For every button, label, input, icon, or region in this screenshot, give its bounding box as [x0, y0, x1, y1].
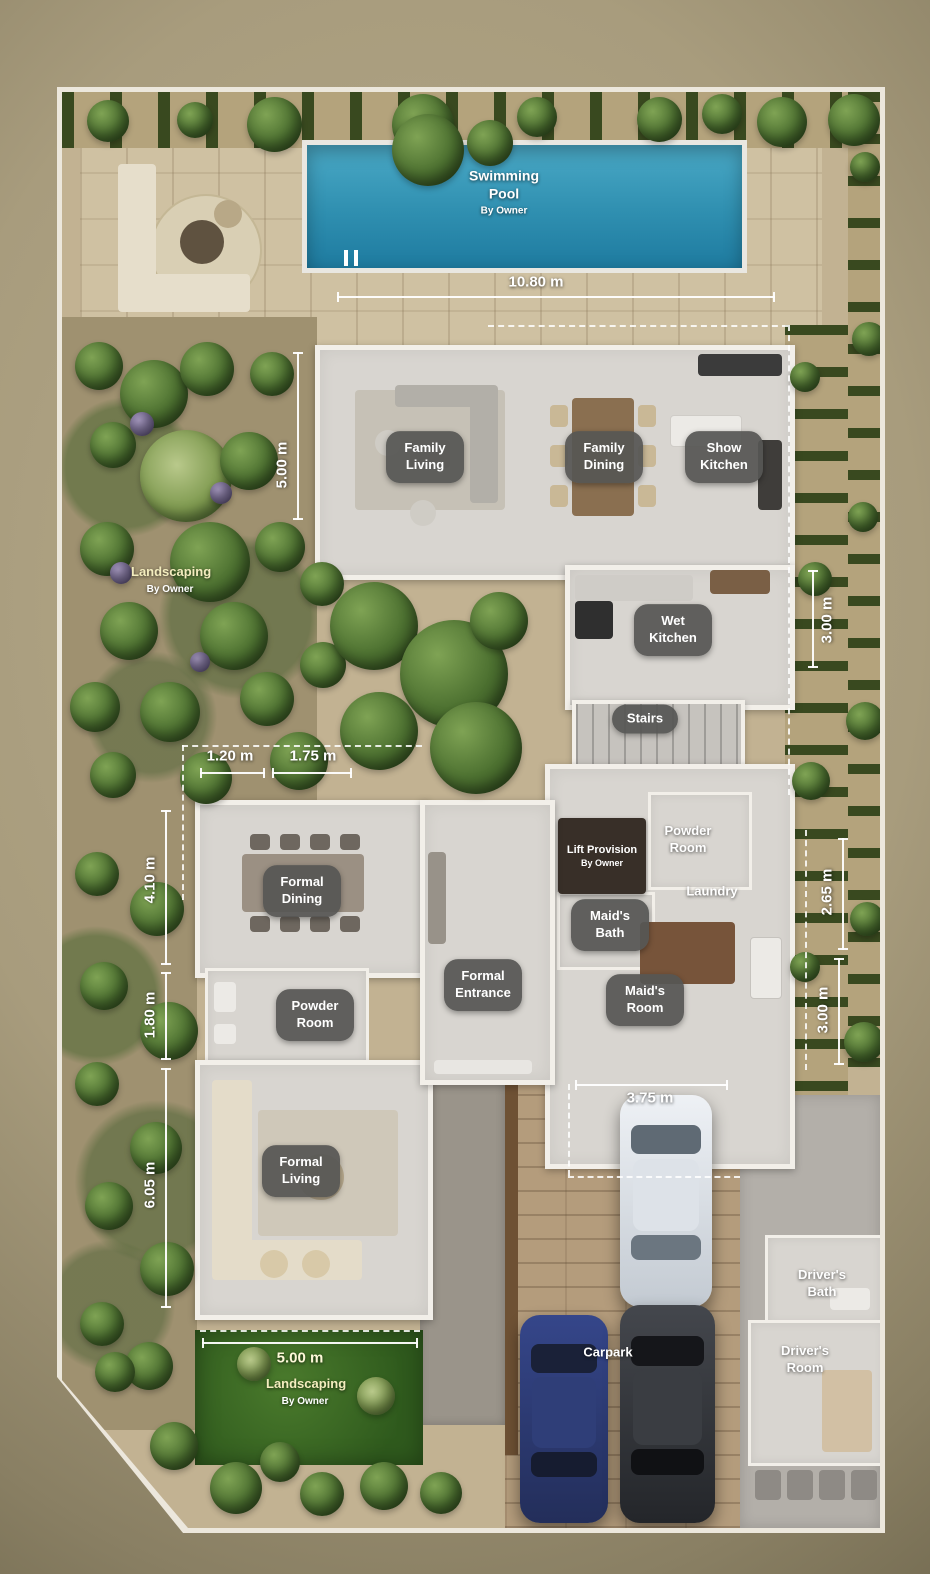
wet-kitchen-counter — [575, 575, 693, 601]
setback-line — [805, 830, 807, 1070]
dimension-line — [272, 772, 352, 774]
stairs-badge: Stairs — [612, 705, 678, 734]
dimension-line — [202, 1342, 418, 1344]
cooktop — [575, 601, 613, 639]
dim-formal-dining: 4.10 m — [142, 857, 159, 904]
tree — [250, 352, 294, 396]
chair — [550, 485, 568, 507]
lift-label: Lift Provision — [558, 844, 646, 856]
drivers-room-label: Driver's Room — [766, 1343, 844, 1377]
chair — [638, 405, 656, 427]
shrub — [846, 702, 884, 740]
landscaping-left-byowner: By Owner — [131, 583, 209, 596]
shrub — [850, 902, 884, 936]
chair — [280, 916, 300, 932]
pouf — [302, 1250, 330, 1278]
tree — [247, 97, 302, 152]
floor-plan-canvas: Swimming Pool By Owner Lift Provision — [0, 0, 930, 1574]
landscaping-left-label: Landscaping By Owner — [131, 564, 209, 596]
console — [428, 852, 446, 944]
palm-tree — [140, 430, 232, 522]
tree — [180, 342, 234, 396]
chair — [310, 834, 330, 850]
chair — [250, 834, 270, 850]
dim-family-depth: 5.00 m — [274, 442, 291, 489]
tree — [260, 1442, 300, 1482]
tree — [255, 522, 305, 572]
show-kitchen-badge: Show Kitchen — [685, 431, 763, 483]
tree — [87, 100, 129, 142]
tree — [75, 1062, 119, 1106]
dimension-line — [812, 570, 814, 668]
sofa — [470, 385, 498, 503]
outdoor-sofa — [118, 274, 250, 312]
shrub — [790, 362, 820, 392]
tree — [240, 672, 294, 726]
wet-kitchen-badge: Wet Kitchen — [634, 604, 712, 656]
tree — [80, 962, 128, 1010]
shrub — [798, 562, 832, 596]
cabinet — [710, 570, 770, 594]
plot-area: Swimming Pool By Owner Lift Provision — [62, 92, 880, 1528]
outdoor-side-table — [214, 200, 242, 228]
bed — [822, 1370, 872, 1452]
setback-line — [488, 325, 788, 327]
dimension-line — [165, 1068, 167, 1308]
dim-right-b: 3.00 m — [815, 987, 832, 1034]
courtyard-tree — [470, 592, 528, 650]
dim-formal-living: 6.05 m — [142, 1162, 159, 1209]
tree — [150, 1422, 198, 1470]
pool-ladder — [354, 250, 358, 266]
dim-court-b: 1.75 m — [290, 748, 337, 765]
formal-entrance-badge: Formal Entrance — [444, 959, 522, 1011]
tree — [200, 602, 268, 670]
maids-room-badge: Maid's Room — [606, 974, 684, 1026]
dimension-line — [165, 810, 167, 965]
pouf — [260, 1250, 288, 1278]
washer — [787, 1470, 813, 1500]
tree — [140, 682, 200, 742]
formal-living-badge: Formal Living — [262, 1145, 340, 1197]
dim-court-a: 1.20 m — [207, 748, 254, 765]
formal-dining-badge: Formal Dining — [263, 865, 341, 917]
dim-carpark: 3.75 m — [627, 1090, 674, 1107]
tree — [220, 432, 278, 490]
flower-bush — [190, 652, 210, 672]
chair — [340, 834, 360, 850]
maids-bath-badge: Maid's Bath — [571, 899, 649, 951]
tree — [80, 1302, 124, 1346]
toilet — [214, 982, 236, 1012]
tree — [420, 1472, 462, 1514]
chair — [250, 916, 270, 932]
tree — [177, 102, 213, 138]
tree — [392, 114, 464, 186]
pool-label-text: Swimming Pool — [465, 166, 543, 202]
bathtub — [750, 937, 782, 999]
tree — [75, 342, 123, 390]
dim-powder: 1.80 m — [142, 992, 159, 1039]
landscaping-bottom-byowner: By Owner — [266, 1395, 344, 1408]
tree — [75, 852, 119, 896]
chair — [340, 916, 360, 932]
lift-byowner: By Owner — [558, 858, 646, 868]
landscaping-bottom-label: Landscaping By Owner — [266, 1376, 344, 1408]
tree — [360, 1462, 408, 1510]
dim-right-a: 2.65 m — [819, 869, 836, 916]
flower-bush — [130, 412, 154, 436]
washer — [851, 1470, 877, 1500]
tree — [85, 1182, 133, 1230]
setback-line — [182, 745, 184, 900]
shrub — [848, 502, 878, 532]
tree — [757, 97, 807, 147]
armchair — [410, 500, 436, 526]
flower-bush — [110, 562, 132, 584]
entrance-steps — [434, 1060, 532, 1074]
tree — [140, 1242, 194, 1296]
dimension-line — [838, 958, 840, 1065]
chair — [310, 916, 330, 932]
black-car — [620, 1305, 715, 1523]
shrub — [844, 1022, 884, 1062]
pool-label: Swimming Pool By Owner — [465, 166, 543, 217]
dim-landscape: 5.00 m — [277, 1350, 324, 1367]
shrub — [792, 762, 830, 800]
kitchen-counter — [698, 354, 782, 376]
family-dining-badge: Family Dining — [565, 431, 643, 483]
powder-room-right-label: Powder Room — [649, 823, 727, 857]
tree — [828, 94, 880, 146]
setback-line — [788, 325, 790, 795]
dimension-line — [165, 972, 167, 1060]
washer — [819, 1470, 845, 1500]
tree — [467, 120, 513, 166]
powder-room-left-badge: Powder Room — [276, 989, 354, 1041]
pool-byowner-text: By Owner — [465, 205, 543, 218]
setback-line — [200, 1330, 420, 1332]
white-car — [620, 1095, 712, 1307]
family-living-badge: Family Living — [386, 431, 464, 483]
chair — [638, 485, 656, 507]
flower-bush — [210, 482, 232, 504]
dimension-line — [337, 296, 775, 298]
tree — [100, 602, 158, 660]
chair — [280, 834, 300, 850]
setback-line — [568, 1176, 740, 1178]
tree — [90, 752, 136, 798]
courtyard-tree — [430, 702, 522, 794]
dimension-line — [575, 1084, 728, 1086]
dim-wet-kitchen: 3.00 m — [819, 597, 836, 644]
tree — [210, 1462, 262, 1514]
laundry-label: Laundry — [673, 884, 751, 901]
tree — [90, 422, 136, 468]
tree — [702, 94, 742, 134]
sink — [214, 1024, 236, 1044]
tree — [95, 1352, 135, 1392]
landscaping-bottom-text: Landscaping — [266, 1376, 344, 1393]
chair — [550, 405, 568, 427]
carpark-label: Carpark — [569, 1345, 647, 1362]
dimension-line — [200, 772, 265, 774]
tree — [637, 97, 682, 142]
outdoor-coffee-table — [180, 220, 224, 264]
pool-ladder — [344, 250, 348, 266]
landscaping-left-text: Landscaping — [131, 564, 209, 581]
drivers-bath-label: Driver's Bath — [783, 1267, 861, 1301]
dimension-line — [842, 838, 844, 950]
washer — [755, 1470, 781, 1500]
lift-shaft: Lift Provision By Owner — [558, 818, 646, 894]
setback-line — [568, 1084, 570, 1176]
tree — [70, 682, 120, 732]
tree — [517, 97, 557, 137]
grass-tuft — [357, 1377, 395, 1415]
dimension-line — [297, 352, 299, 520]
garden-fence-strip — [505, 1075, 518, 1455]
tree — [300, 1472, 344, 1516]
dim-top-width: 10.80 m — [508, 274, 563, 291]
shrub — [850, 152, 880, 182]
courtyard-tree — [340, 692, 418, 770]
